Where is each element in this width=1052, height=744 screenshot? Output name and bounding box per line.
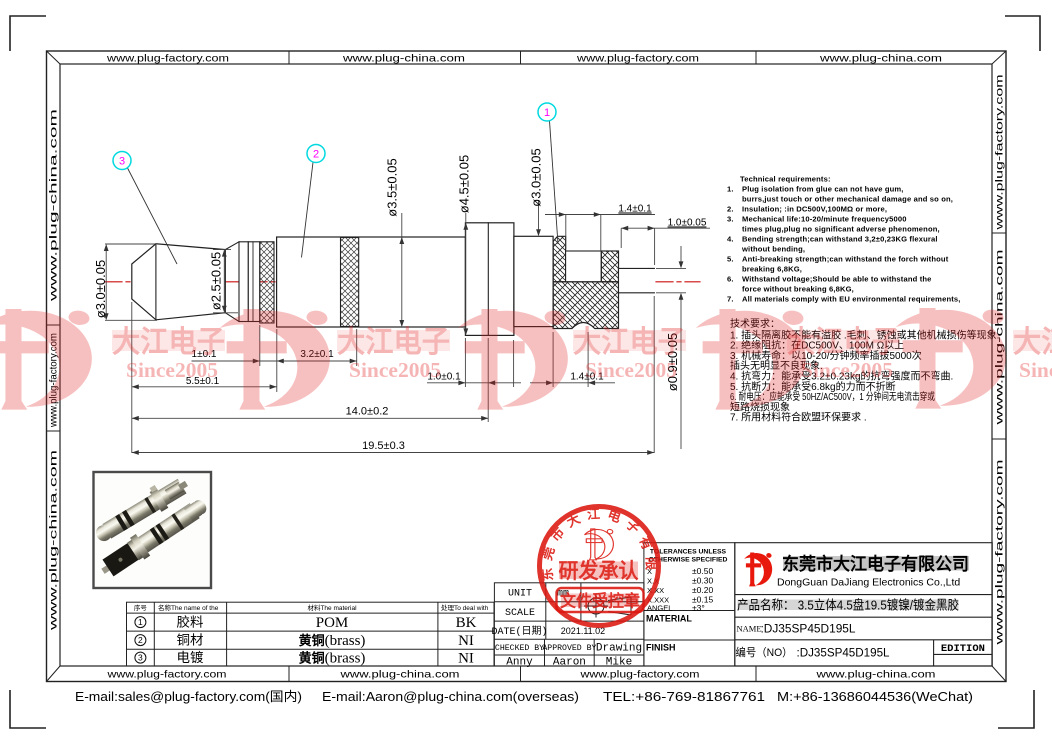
svg-text:大江电子: 大江电子 xyxy=(337,326,450,359)
svg-text:BK: BK xyxy=(456,615,477,631)
svg-text:材料The material: 材料The material xyxy=(307,603,357,612)
svg-text:Technical requirements:: Technical requirements: xyxy=(740,175,831,184)
svg-text:1: 1 xyxy=(138,617,143,627)
svg-text:4.: 4. xyxy=(727,235,734,244)
svg-text:www.plug-china.com: www.plug-china.com xyxy=(339,669,460,681)
svg-text:www.plug-china.com: www.plug-china.com xyxy=(815,669,936,681)
svg-text:burrs,just touch or other mech: burrs,just touch or other mechanical dam… xyxy=(742,195,953,204)
svg-text:±0.30: ±0.30 xyxy=(692,576,713,586)
svg-text:研发承认: 研发承认 xyxy=(559,559,639,583)
svg-text:CHECKED BY: CHECKED BY xyxy=(495,644,544,653)
svg-text:Since2005: Since2005 xyxy=(126,358,218,382)
svg-text:www.plug-china.com: www.plug-china.com xyxy=(48,450,60,632)
svg-text:breaking 6,8KG,: breaking 6,8KG, xyxy=(742,265,802,274)
svg-text:M:+86-13686044536(WeChat): M:+86-13686044536(WeChat) xyxy=(777,689,973,704)
svg-text:ø4.5±0.05: ø4.5±0.05 xyxy=(457,155,472,213)
svg-text:黄铜(brass): 黄铜(brass) xyxy=(299,651,366,667)
svg-text:SCALE: SCALE xyxy=(505,608,535,619)
svg-text:UNIT: UNIT xyxy=(508,589,532,600)
svg-text:www.plug-factory.com: www.plug-factory.com xyxy=(106,53,229,65)
svg-text:铜材: 铜材 xyxy=(177,633,204,648)
svg-text:ANGEL: ANGEL xyxy=(647,604,672,613)
svg-text:2.: 2. xyxy=(727,205,734,214)
svg-text:Anti-breaking strength;can wit: Anti-breaking strength;can withstand the… xyxy=(742,255,949,264)
svg-text::DJ35SP45D195L: :DJ35SP45D195L xyxy=(761,622,856,636)
svg-text:times plug,plug no significant: times plug,plug no significant adverse p… xyxy=(742,225,940,234)
svg-text:Anny: Anny xyxy=(506,656,533,668)
svg-text:DongGuan DaJiang Electronics C: DongGuan DaJiang Electronics Co.,Ltd xyxy=(777,577,960,589)
svg-text:www.plug-factory.com: www.plug-factory.com xyxy=(994,459,1006,646)
svg-text:Plug isolation from glue can n: Plug isolation from glue can not have gu… xyxy=(742,185,904,194)
svg-text:电镀: 电镀 xyxy=(177,650,204,665)
svg-text:TEL:+86-769-81867761: TEL:+86-769-81867761 xyxy=(603,689,765,704)
svg-text:Mike: Mike xyxy=(606,656,632,668)
svg-text:大江电子: 大江电子 xyxy=(787,326,900,359)
svg-text:NI: NI xyxy=(458,651,474,667)
svg-text:FINISH: FINISH xyxy=(646,643,676,653)
svg-text:Aaron: Aaron xyxy=(553,656,586,668)
svg-text:2: 2 xyxy=(313,149,319,161)
svg-text:大江电子: 大江电子 xyxy=(1013,326,1052,359)
svg-text:E-mail:sales@plug-factory.com(: E-mail:sales@plug-factory.com(国内) xyxy=(75,689,302,704)
svg-text:产品名称： 3.5立体4.5盘19.5镀镍/镀金黑胶: 产品名称： 3.5立体4.5盘19.5镀镍/镀金黑胶 xyxy=(737,598,959,613)
svg-text:NAME: NAME xyxy=(737,624,762,634)
svg-text:2: 2 xyxy=(138,635,143,645)
svg-text:ø3.0±0.05: ø3.0±0.05 xyxy=(529,148,544,206)
svg-text:Insulation; :in DC500V,100MΩ o: Insulation; :in DC500V,100MΩ or more, xyxy=(742,205,887,214)
svg-text:www.plug-factory.com: www.plug-factory.com xyxy=(994,74,1006,231)
svg-text:1.4±0.1: 1.4±0.1 xyxy=(618,204,652,215)
svg-text:序号: 序号 xyxy=(134,603,148,612)
svg-text:1: 1 xyxy=(544,107,550,119)
svg-text:大江电子: 大江电子 xyxy=(573,326,686,359)
svg-text:±0.50: ±0.50 xyxy=(692,566,713,576)
svg-text:EDITION: EDITION xyxy=(941,643,985,655)
svg-text:1.: 1. xyxy=(727,185,734,194)
svg-text:MATERIAL: MATERIAL xyxy=(646,614,692,624)
svg-text:www.plug-factory.com: www.plug-factory.com xyxy=(106,669,226,681)
svg-text:文件受控章: 文件受控章 xyxy=(560,591,640,611)
svg-text:6.: 6. xyxy=(727,275,734,284)
svg-text:ø2.5±0.05: ø2.5±0.05 xyxy=(209,252,224,310)
svg-text:APPROVED BY: APPROVED BY xyxy=(542,644,596,653)
svg-text:东莞市大江电子有限公司: 东莞市大江电子有限公司 xyxy=(782,554,969,574)
svg-text:www.plug-factory.com: www.plug-factory.com xyxy=(579,669,699,681)
svg-text:胶料: 胶料 xyxy=(177,615,204,630)
svg-text:1.0±0.05: 1.0±0.05 xyxy=(668,218,707,229)
svg-text:±3°: ±3° xyxy=(692,603,705,613)
svg-text:www.plug-china.com: www.plug-china.com xyxy=(342,53,466,65)
svg-text:14.0±0.2: 14.0±0.2 xyxy=(346,406,389,418)
svg-text:5.: 5. xyxy=(727,255,734,264)
svg-text:黄铜(brass): 黄铜(brass) xyxy=(299,633,366,649)
svg-text:编号（NO）: 编号（NO） xyxy=(736,645,793,659)
svg-text:19.5±0.3: 19.5±0.3 xyxy=(362,440,405,452)
svg-text:7. 所用材料符合欧盟环保要求 .: 7. 所用材料符合欧盟环保要求 . xyxy=(730,411,867,424)
svg-text:DATE(日期): DATE(日期) xyxy=(491,625,547,638)
svg-text:处理To deal with: 处理To deal with xyxy=(441,603,489,612)
svg-text:Since2005: Since2005 xyxy=(585,358,677,382)
svg-text:without bending,: without bending, xyxy=(741,245,805,254)
svg-text:www.plug-factory.com: www.plug-factory.com xyxy=(576,53,699,65)
svg-text:3: 3 xyxy=(119,156,125,168)
svg-text:Since2005: Since2005 xyxy=(349,358,441,382)
svg-text:ø3.5±0.05: ø3.5±0.05 xyxy=(385,158,400,216)
svg-text:Since2005: Since2005 xyxy=(801,358,893,382)
svg-text:3: 3 xyxy=(138,653,143,663)
svg-text:NI: NI xyxy=(458,633,474,649)
svg-text:POM: POM xyxy=(316,615,349,631)
svg-text:Mechanical life:10-20/minute f: Mechanical life:10-20/minute frequency50… xyxy=(742,215,907,224)
svg-text:www.plug-china.com: www.plug-china.com xyxy=(819,53,943,65)
svg-text:Drawing: Drawing xyxy=(596,643,642,655)
svg-text:www.plug-china.com: www.plug-china.com xyxy=(48,109,60,303)
svg-text:Bending strength;can withstand: Bending strength;can withstand 3,2±0,23K… xyxy=(742,235,938,244)
svg-text:All materials comply with EU e: All materials comply with EU environment… xyxy=(742,295,961,304)
svg-text::DJ35SP45D195L: :DJ35SP45D195L xyxy=(797,646,890,660)
svg-text:E-mail:Aaron@plug-china.com(ov: E-mail:Aaron@plug-china.com(overseas) xyxy=(322,689,579,704)
svg-text:Since2005: Since2005 xyxy=(1019,358,1052,382)
svg-text:名称The name of the: 名称The name of the xyxy=(158,603,219,612)
svg-text:force without breaking 6,8KG,: force without breaking 6,8KG, xyxy=(742,285,854,294)
svg-text:7.: 7. xyxy=(727,295,734,304)
svg-text:Withstand voltage;Should be ab: Withstand voltage;Should be able to with… xyxy=(742,275,932,284)
svg-text:大江电子: 大江电子 xyxy=(112,326,225,359)
svg-text:3.: 3. xyxy=(727,215,734,224)
svg-text:ø3.0±0.05: ø3.0±0.05 xyxy=(93,260,108,318)
svg-text:TOLERANCES UNLESS: TOLERANCES UNLESS xyxy=(650,549,727,556)
